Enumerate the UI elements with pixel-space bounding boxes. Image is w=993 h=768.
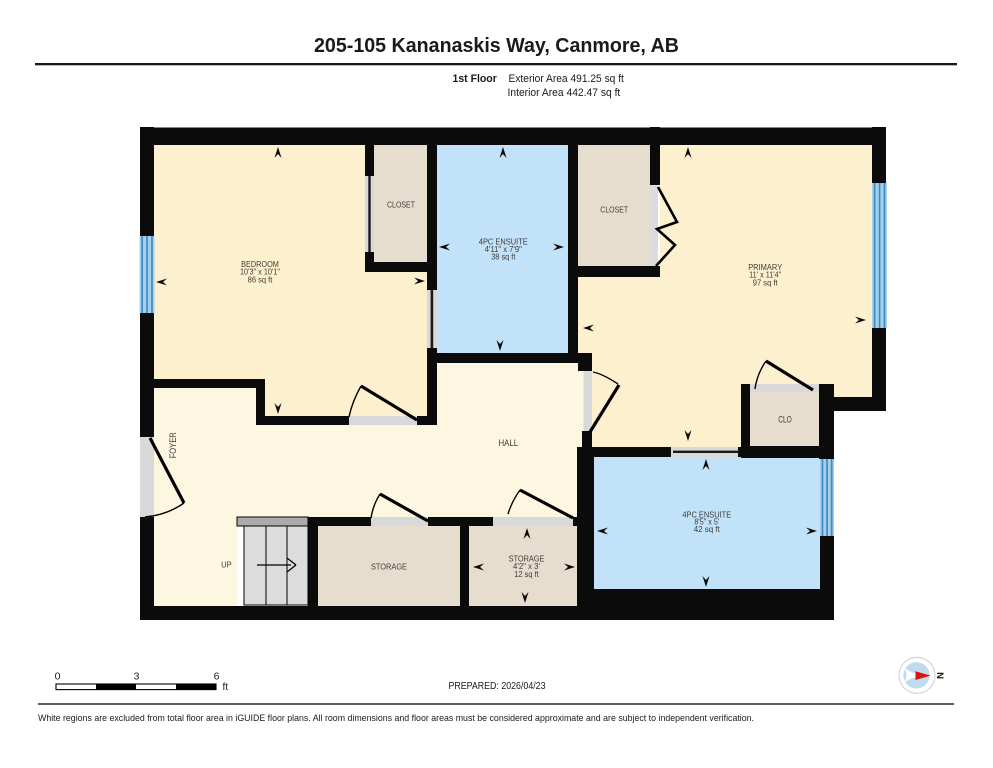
svg-text:CLOSET: CLOSET — [600, 204, 628, 214]
svg-text:N: N — [934, 672, 945, 679]
svg-text:Exterior Area 491.25 sq ft: Exterior Area 491.25 sq ft — [509, 73, 625, 85]
svg-text:97 sq ft: 97 sq ft — [753, 278, 779, 287]
svg-text:ft: ft — [223, 682, 229, 693]
svg-text:UP: UP — [221, 560, 232, 570]
svg-text:3: 3 — [134, 671, 140, 683]
svg-text:STORAGE: STORAGE — [371, 561, 407, 571]
svg-text:White regions are excluded fro: White regions are excluded from total fl… — [38, 713, 754, 723]
svg-text:6: 6 — [214, 671, 220, 683]
svg-text:12 sq ft: 12 sq ft — [514, 570, 539, 579]
svg-text:CLOSET: CLOSET — [387, 200, 415, 210]
svg-text:0: 0 — [55, 671, 61, 683]
svg-text:FOYER: FOYER — [168, 432, 178, 458]
svg-text:42 sq ft: 42 sq ft — [694, 525, 721, 534]
svg-text:CLO: CLO — [778, 414, 792, 424]
svg-text:PREPARED: 2026/04/23: PREPARED: 2026/04/23 — [449, 681, 546, 692]
svg-text:Interior Area 442.47 sq ft: Interior Area 442.47 sq ft — [508, 87, 622, 99]
svg-text:38 sq ft: 38 sq ft — [491, 253, 516, 262]
svg-text:205-105 Kananaskis Way, Canmor: 205-105 Kananaskis Way, Canmore, AB — [314, 35, 679, 57]
svg-text:1st Floor: 1st Floor — [453, 73, 498, 85]
svg-text:HALL: HALL — [498, 438, 518, 448]
svg-text:86 sq ft: 86 sq ft — [248, 275, 273, 284]
